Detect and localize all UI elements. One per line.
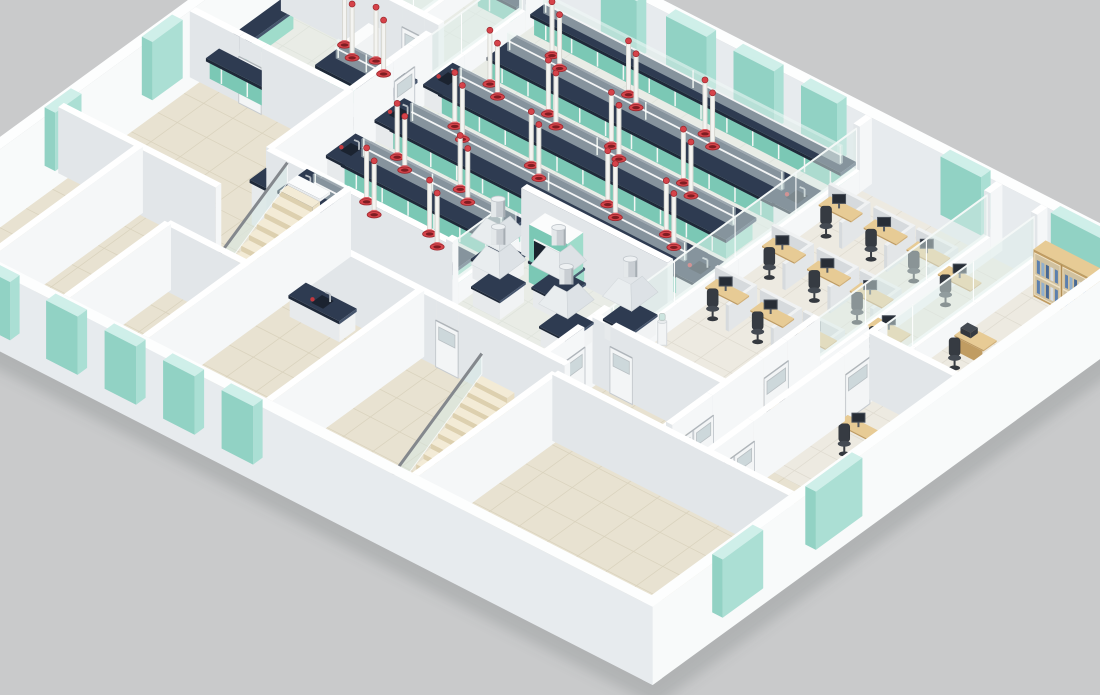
water-cooler — [658, 313, 667, 345]
render-stage — [0, 0, 1100, 695]
laboratory-floorplan-3d-render — [0, 0, 1100, 695]
wash-room-west-wall-segment — [446, 235, 458, 309]
